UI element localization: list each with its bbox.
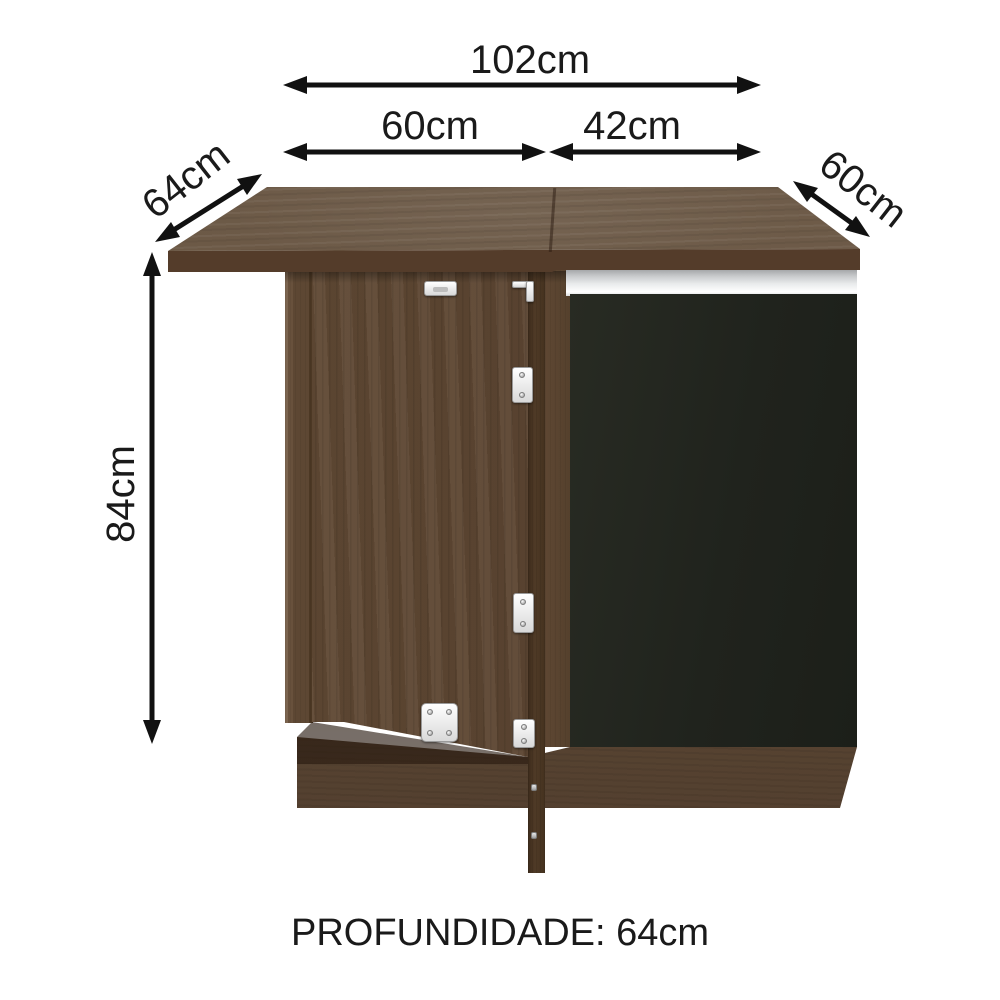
screw: [521, 724, 527, 730]
aluminum-handle-profile: [566, 268, 857, 296]
screw: [427, 709, 433, 715]
arrowhead: [793, 181, 818, 202]
arrowhead: [737, 143, 761, 161]
arrowhead: [283, 143, 307, 161]
arrowhead: [283, 76, 307, 94]
arrowhead: [143, 720, 161, 744]
screw: [521, 738, 527, 744]
depth-caption: PROFUNDIDADE: 64cm: [0, 912, 1000, 955]
screw: [531, 832, 537, 839]
door-hinge: [513, 593, 534, 633]
door-hinge: [512, 367, 533, 403]
latch-slot: [433, 287, 448, 292]
screw: [519, 372, 525, 378]
door-hinge: [513, 719, 535, 748]
screw: [446, 709, 452, 715]
product-dimension-diagram: 102cm 60cm 42cm 64cm 60cm 84cm PROFUNDID…: [0, 0, 1000, 1000]
screw: [520, 621, 526, 627]
arrowhead: [737, 76, 761, 94]
door-latch-plate: [424, 281, 457, 296]
label-left-width: 60cm: [330, 104, 530, 148]
black-door-front: [570, 294, 857, 747]
screw: [427, 730, 433, 736]
arrowhead: [237, 174, 262, 195]
label-total-width: 102cm: [430, 38, 630, 82]
corner-post-panel: [528, 269, 545, 873]
screw: [446, 730, 452, 736]
right-section-side-edge: [545, 269, 572, 747]
label-right-width: 42cm: [532, 104, 732, 148]
corner-bracket: [526, 281, 534, 302]
floor-mount-plate: [421, 703, 458, 742]
screw: [519, 392, 525, 398]
cabinet-left-side-panel: [285, 269, 313, 723]
screw: [520, 599, 526, 605]
label-height: 84cm: [99, 394, 143, 594]
screw: [531, 784, 537, 791]
arrowhead: [143, 252, 161, 276]
